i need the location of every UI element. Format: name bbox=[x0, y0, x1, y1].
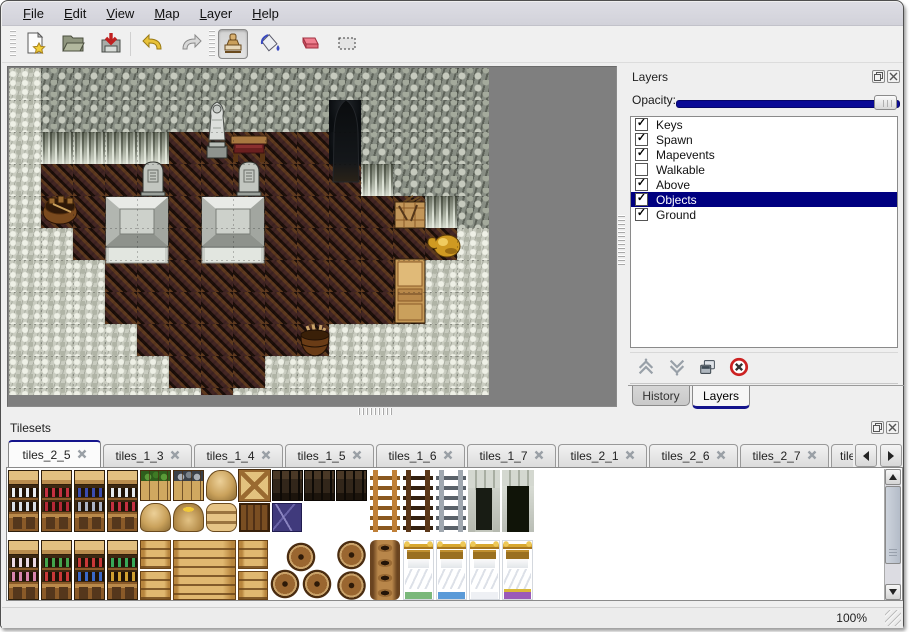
tileset-tile-crate-gold[interactable] bbox=[140, 571, 171, 600]
map-tile-stone-wall bbox=[425, 100, 457, 132]
tileset-tile-shelf-blue[interactable] bbox=[74, 470, 105, 532]
map-tile-wood-floor bbox=[265, 260, 297, 292]
tab-close-icon[interactable] bbox=[534, 449, 544, 463]
layer-visibility-checkbox[interactable]: ✓ bbox=[635, 118, 648, 131]
map-tile-stone-wall bbox=[457, 164, 489, 196]
tileset-tile-chest-dark[interactable] bbox=[304, 470, 335, 501]
tab-label: tiles_1_6 bbox=[388, 449, 436, 463]
map-tile-stone-wall bbox=[425, 132, 457, 164]
undo-icon bbox=[141, 31, 165, 58]
tileset-tile-bed-blue[interactable] bbox=[436, 540, 467, 600]
tileset-tile-chest-dark[interactable] bbox=[336, 470, 367, 501]
tileset-tile-ladder-dark[interactable] bbox=[403, 470, 433, 532]
tileset-tile-crate-gold-wide[interactable] bbox=[173, 540, 236, 600]
menu-bar: FileEditViewMapLayerHelp bbox=[2, 2, 903, 26]
tileset-tab-tiles_1_6[interactable]: tiles_1_6 bbox=[376, 444, 465, 467]
map-tile-stone-ground bbox=[41, 228, 73, 260]
select-tool-icon bbox=[335, 31, 359, 58]
map-tile-stone-wall bbox=[361, 68, 393, 100]
map-object-stone-platform bbox=[105, 196, 169, 264]
map-tile-wood-floor bbox=[105, 292, 137, 324]
map-tile-stone-ground bbox=[425, 324, 457, 356]
scroll-up-button[interactable] bbox=[885, 469, 901, 485]
map-tile-wood-floor bbox=[265, 292, 297, 324]
map-tile-wood-floor bbox=[105, 164, 137, 196]
tileset-tile-bed-green[interactable] bbox=[403, 540, 434, 600]
tileset-tile-arch-door[interactable] bbox=[502, 470, 534, 532]
map-tile-stone-wall bbox=[233, 100, 265, 132]
tileset-tile-purple[interactable] bbox=[272, 503, 302, 532]
layer-label: Keys bbox=[656, 118, 683, 132]
tileset-tile-crate-gold[interactable] bbox=[238, 571, 268, 600]
new-file-icon bbox=[23, 31, 47, 58]
tileset-tile-barrel[interactable] bbox=[336, 571, 367, 600]
map-tile-stone-wall bbox=[169, 68, 201, 100]
map-tile-wood-floor bbox=[201, 388, 233, 395]
map-tile-wood-floor bbox=[297, 164, 329, 196]
layer-row-ground[interactable]: ✓Ground bbox=[631, 207, 897, 222]
map-tile-stone-ground bbox=[457, 292, 489, 324]
scroll-down-button[interactable] bbox=[885, 584, 901, 600]
map-tile-wood-floor bbox=[361, 260, 393, 292]
layer-row-walkable[interactable]: Walkable bbox=[631, 162, 897, 177]
stamp-tool-icon bbox=[221, 31, 245, 58]
map-tile-stone-wall bbox=[393, 164, 425, 196]
opacity-slider-track[interactable] bbox=[676, 100, 900, 108]
tileset-tile-crate-green[interactable] bbox=[140, 470, 171, 501]
map-tile-wood-floor bbox=[329, 228, 361, 260]
tab-scroll-left-button[interactable] bbox=[855, 444, 877, 467]
map-tile-stone-ground bbox=[9, 196, 41, 228]
tab-scroll-right-button[interactable] bbox=[880, 444, 902, 467]
dock-tab-layers[interactable]: Layers bbox=[692, 386, 750, 409]
map-tile-stone-wall bbox=[297, 68, 329, 100]
tab-label: tiles_2_7 bbox=[752, 449, 800, 463]
select-tool-button[interactable] bbox=[332, 29, 362, 59]
map-tile-wood-floor bbox=[169, 356, 201, 388]
redo-icon bbox=[179, 31, 203, 58]
layer-label: Ground bbox=[656, 208, 696, 222]
map-tile-stone-ground bbox=[265, 356, 297, 388]
map-tile-cliff-wall bbox=[105, 132, 137, 164]
map-tile-stone-wall bbox=[393, 100, 425, 132]
move-down-icon bbox=[667, 357, 687, 380]
layer-actions-toolbar bbox=[630, 352, 898, 384]
tileset-tile-sack[interactable] bbox=[206, 470, 237, 501]
new-file-button[interactable] bbox=[20, 29, 50, 59]
tileset-tile-shelf-bottles[interactable] bbox=[107, 540, 138, 600]
float-panel-button[interactable] bbox=[872, 70, 885, 83]
fill-tool-button[interactable] bbox=[256, 29, 286, 59]
map-tile-stone-ground bbox=[41, 260, 73, 292]
eraser-tool-icon bbox=[297, 31, 321, 58]
tileset-tile-sack-stack[interactable] bbox=[206, 503, 237, 532]
map-tile-wood-floor bbox=[137, 324, 169, 356]
map-tile-wood-floor bbox=[265, 196, 297, 228]
map-tile-stone-wall bbox=[137, 68, 169, 100]
tab-label: tiles_1_4 bbox=[206, 449, 254, 463]
opacity-slider-handle[interactable] bbox=[874, 95, 897, 110]
tileset-tile-pots[interactable] bbox=[370, 540, 400, 600]
zoom-level: 100% bbox=[836, 611, 867, 625]
save-icon bbox=[99, 31, 123, 58]
horizontal-splitter-handle[interactable] bbox=[358, 408, 394, 415]
map-tile-stone-ground bbox=[457, 388, 489, 395]
map-tile-wood-floor bbox=[73, 228, 105, 260]
map-tile-stone-wall bbox=[425, 68, 457, 100]
map-canvas-area[interactable] bbox=[7, 66, 617, 407]
map-object-crate bbox=[393, 194, 427, 230]
map-tile-stone-wall bbox=[361, 100, 393, 132]
menu-view[interactable]: View bbox=[97, 4, 143, 23]
map-tile-stone-ground bbox=[329, 388, 361, 395]
tileset-tile-barrel-pile[interactable] bbox=[270, 541, 333, 600]
map-object-cave-door bbox=[327, 98, 365, 184]
map-tile-stone-ground bbox=[393, 356, 425, 388]
map-tile-stone-ground bbox=[425, 292, 457, 324]
map-tile-stone-wall bbox=[425, 164, 457, 196]
toolbar-handle[interactable] bbox=[209, 30, 215, 58]
map-tile-stone-ground bbox=[393, 388, 425, 395]
layer-row-keys[interactable]: ✓Keys bbox=[631, 117, 897, 132]
eraser-tool-button[interactable] bbox=[294, 29, 324, 59]
tileset-tile-shelf-jars[interactable] bbox=[107, 470, 138, 532]
tileset-tab-tiles_1_5[interactable]: tiles_1_5 bbox=[285, 444, 374, 467]
map-tile-wood-floor bbox=[201, 292, 233, 324]
map-tile-stone-wall bbox=[361, 132, 393, 164]
map-tile-wood-floor bbox=[297, 196, 329, 228]
tileset-tile-ladder-wood[interactable] bbox=[370, 470, 400, 532]
menu-edit[interactable]: Edit bbox=[55, 4, 95, 23]
map-tile-wood-floor bbox=[297, 132, 329, 164]
map-tile-stone-ground bbox=[9, 356, 41, 388]
map-tile-wood-floor bbox=[201, 324, 233, 356]
status-bar: 100% bbox=[2, 607, 903, 628]
map-tile-cliff-wall bbox=[73, 132, 105, 164]
map-tile-stone-wall bbox=[265, 100, 297, 132]
map-tile-wood-floor bbox=[137, 260, 169, 292]
map-tile-wood-floor bbox=[393, 228, 425, 260]
map-tile-stone-ground bbox=[233, 388, 265, 395]
tab-close-icon[interactable] bbox=[716, 449, 726, 463]
map-tile-stone-ground bbox=[9, 260, 41, 292]
map-tile-wood-floor bbox=[265, 132, 297, 164]
close-panel-button[interactable] bbox=[886, 421, 899, 434]
layer-row-objects[interactable]: ✓Objects bbox=[631, 192, 897, 207]
tab-close-icon[interactable] bbox=[625, 449, 635, 463]
duplicate-icon bbox=[698, 357, 718, 380]
tab-label: tiles_1_7 bbox=[479, 449, 527, 463]
tileset-scrollbar[interactable] bbox=[884, 469, 901, 600]
map-object-gravestone bbox=[235, 158, 263, 196]
map-tile-stone-ground bbox=[9, 292, 41, 324]
map-tile-stone-ground bbox=[73, 324, 105, 356]
map-tile-stone-wall bbox=[105, 100, 137, 132]
map-tile-stone-ground bbox=[73, 260, 105, 292]
map-tile-stone-ground bbox=[297, 356, 329, 388]
tilesets-panel-header: Tilesets bbox=[4, 420, 905, 438]
tileset-tab-tiles_2_6[interactable]: tiles_2_6 bbox=[649, 444, 738, 467]
tab-close-icon[interactable] bbox=[77, 448, 87, 462]
map-tile-stone-ground bbox=[9, 164, 41, 196]
map-tile-stone-ground bbox=[41, 356, 73, 388]
map-tile-stone-ground bbox=[137, 356, 169, 388]
layer-label: Spawn bbox=[656, 133, 693, 147]
tileset-tile-crate-panel[interactable] bbox=[239, 503, 270, 532]
map-tile-cliff-wall bbox=[41, 132, 73, 164]
map-tile-stone-ground bbox=[9, 132, 41, 164]
layer-list: ✓Keys✓Spawn✓MapeventsWalkable✓Above✓Obje… bbox=[630, 116, 898, 348]
save-button[interactable] bbox=[96, 29, 126, 59]
tab-close-icon[interactable] bbox=[261, 449, 271, 463]
map-tile-stone-ground bbox=[425, 260, 457, 292]
redo-button[interactable] bbox=[176, 29, 206, 59]
map-tile-wood-floor bbox=[169, 228, 201, 260]
tileset-tile-bed-plain[interactable] bbox=[469, 540, 500, 600]
layer-visibility-checkbox[interactable]: ✓ bbox=[635, 133, 648, 146]
map-canvas[interactable] bbox=[9, 68, 489, 395]
map-tile-wood-floor bbox=[169, 196, 201, 228]
map-tile-stone-wall bbox=[41, 68, 73, 100]
map-tile-stone-ground bbox=[105, 324, 137, 356]
tileset-tile-crate-gold[interactable] bbox=[140, 540, 171, 569]
map-tile-wood-floor bbox=[329, 260, 361, 292]
map-tile-wood-floor bbox=[329, 292, 361, 324]
menu-help[interactable]: Help bbox=[243, 4, 288, 23]
layer-row-mapevents[interactable]: ✓Mapevents bbox=[631, 147, 897, 162]
tileset-tile-chest-dark[interactable] bbox=[272, 470, 303, 501]
map-tile-stone-ground bbox=[361, 388, 393, 395]
map-tile-wood-floor bbox=[265, 324, 297, 356]
map-tile-stone-wall bbox=[457, 100, 489, 132]
dock-tab-history[interactable]: History bbox=[632, 386, 690, 406]
dock-tabs: HistoryLayers bbox=[628, 385, 904, 411]
layer-row-above[interactable]: ✓Above bbox=[631, 177, 897, 192]
tileset-tab-bar: tiles_2_5tiles_1_3tiles_1_4tiles_1_5tile… bbox=[8, 440, 853, 467]
map-tile-wood-floor bbox=[201, 356, 233, 388]
map-tile-stone-wall bbox=[201, 68, 233, 100]
tab-close-icon[interactable] bbox=[807, 449, 817, 463]
layers-panel-title: Layers bbox=[632, 70, 668, 84]
map-tile-stone-ground bbox=[73, 388, 105, 395]
map-tile-stone-wall bbox=[457, 132, 489, 164]
tileset-tab-tiles[interactable]: tiles_ bbox=[831, 444, 853, 467]
map-tile-stone-wall bbox=[105, 68, 137, 100]
map-tile-stone-ground bbox=[361, 356, 393, 388]
undo-button[interactable] bbox=[138, 29, 168, 59]
map-object-statue bbox=[202, 100, 232, 162]
map-tile-wood-floor bbox=[329, 196, 361, 228]
layer-visibility-checkbox[interactable] bbox=[635, 163, 648, 176]
tileset-tile-ladder-metal[interactable] bbox=[436, 470, 466, 532]
map-tile-stone-ground bbox=[329, 356, 361, 388]
map-tile-wood-floor bbox=[265, 164, 297, 196]
layer-label: Above bbox=[656, 178, 690, 192]
open-button[interactable] bbox=[58, 29, 88, 59]
map-tile-stone-ground bbox=[73, 356, 105, 388]
map-tile-stone-wall bbox=[393, 68, 425, 100]
toolbar-separator bbox=[130, 32, 131, 56]
tab-close-icon[interactable] bbox=[443, 449, 453, 463]
float-panel-button[interactable] bbox=[871, 421, 884, 434]
move-down-layer-button[interactable] bbox=[665, 356, 689, 380]
map-object-stone-platform bbox=[201, 196, 265, 264]
map-tile-wood-floor bbox=[137, 292, 169, 324]
map-tile-wood-floor bbox=[297, 228, 329, 260]
stamp-tool-button[interactable] bbox=[218, 29, 248, 59]
map-tile-stone-ground bbox=[73, 292, 105, 324]
map-tile-stone-ground bbox=[297, 388, 329, 395]
map-tile-stone-wall bbox=[137, 100, 169, 132]
menu-map[interactable]: Map bbox=[145, 4, 188, 23]
move-up-layer-button[interactable] bbox=[634, 356, 658, 380]
tileset-tile-bed-purple[interactable] bbox=[502, 540, 533, 600]
map-object-barrel bbox=[297, 320, 333, 358]
map-tile-stone-ground bbox=[41, 388, 73, 395]
map-tile-stone-wall bbox=[233, 68, 265, 100]
map-object-cabinet bbox=[394, 258, 426, 324]
layer-label: Mapevents bbox=[656, 148, 715, 162]
map-object-pot bbox=[41, 186, 79, 226]
map-tile-wood-floor bbox=[169, 132, 201, 164]
fill-tool-icon bbox=[259, 31, 283, 58]
map-tile-stone-ground bbox=[457, 356, 489, 388]
tileset-canvas[interactable] bbox=[6, 467, 903, 601]
move-up-icon bbox=[636, 357, 656, 380]
map-tile-stone-ground bbox=[9, 324, 41, 356]
tileset-tile-shelf-potions[interactable] bbox=[41, 540, 72, 600]
toolbar bbox=[2, 26, 903, 63]
map-tile-stone-ground bbox=[41, 324, 73, 356]
duplicate-layer-button[interactable] bbox=[696, 356, 720, 380]
delete-icon bbox=[729, 357, 749, 380]
map-tile-stone-wall bbox=[73, 100, 105, 132]
map-tile-stone-wall bbox=[265, 68, 297, 100]
tileset-tile-sack[interactable] bbox=[140, 503, 171, 532]
map-tile-stone-ground bbox=[105, 356, 137, 388]
tab-label: tiles_2_5 bbox=[22, 448, 70, 462]
map-tile-stone-ground bbox=[361, 324, 393, 356]
menu-file[interactable]: File bbox=[14, 4, 53, 23]
map-tile-cliff-wall bbox=[361, 164, 393, 196]
map-tile-stone-ground bbox=[169, 388, 201, 395]
close-panel-button[interactable] bbox=[887, 70, 900, 83]
tileset-tile-shelf-dishes[interactable] bbox=[8, 470, 39, 532]
tileset-tile-shelf-books[interactable] bbox=[74, 540, 105, 600]
tab-label: tiles_2_1 bbox=[570, 449, 618, 463]
layer-visibility-checkbox[interactable]: ✓ bbox=[635, 193, 648, 206]
map-tile-stone-ground bbox=[137, 388, 169, 395]
map-tile-stone-ground bbox=[9, 68, 41, 100]
map-tile-wood-floor bbox=[361, 228, 393, 260]
map-tile-wood-floor bbox=[265, 228, 297, 260]
tileset-tile-barrel[interactable] bbox=[336, 540, 367, 570]
delete-layer-button[interactable] bbox=[727, 356, 751, 380]
tileset-tile-shelf-red[interactable] bbox=[41, 470, 72, 532]
tilesets-panel-title: Tilesets bbox=[10, 421, 51, 435]
tab-close-icon[interactable] bbox=[170, 449, 180, 463]
tileset-tile-crate-gold[interactable] bbox=[238, 540, 268, 569]
map-tile-wood-floor bbox=[169, 164, 201, 196]
map-tile-wood-floor bbox=[233, 356, 265, 388]
map-tile-stone-ground bbox=[425, 388, 457, 395]
map-tile-wood-floor bbox=[297, 260, 329, 292]
tileset-tile-arch-open[interactable] bbox=[468, 470, 500, 532]
layer-label: Objects bbox=[656, 193, 697, 207]
tab-label: tiles_1_5 bbox=[297, 449, 345, 463]
map-tile-wood-floor bbox=[233, 324, 265, 356]
open-icon bbox=[61, 31, 85, 58]
map-tile-stone-wall bbox=[457, 68, 489, 100]
map-tile-wood-floor bbox=[361, 292, 393, 324]
resize-grip[interactable] bbox=[885, 610, 901, 626]
tileset-tab-tiles_1_3[interactable]: tiles_1_3 bbox=[103, 444, 192, 467]
tileset-tile-crate-x[interactable] bbox=[239, 470, 270, 501]
map-object-gravestone bbox=[139, 158, 167, 196]
tileset-tab-tiles_2_5[interactable]: tiles_2_5 bbox=[8, 440, 101, 467]
layer-label: Walkable bbox=[656, 163, 705, 177]
map-tile-stone-ground bbox=[393, 324, 425, 356]
map-tile-stone-ground bbox=[329, 324, 361, 356]
layers-panel-header: Layers bbox=[628, 68, 904, 88]
application-window: FileEditViewMapLayerHelp Layers Opacity:… bbox=[0, 0, 909, 632]
map-tile-stone-wall bbox=[73, 68, 105, 100]
tileset-tile-crate-gray[interactable] bbox=[173, 470, 204, 501]
map-tile-stone-ground bbox=[105, 388, 137, 395]
map-tile-wood-floor bbox=[201, 164, 233, 196]
map-tile-stone-ground bbox=[9, 228, 41, 260]
layer-visibility-checkbox[interactable]: ✓ bbox=[635, 208, 648, 221]
tileset-tile-sack-open[interactable] bbox=[173, 503, 204, 532]
map-tile-stone-ground bbox=[425, 356, 457, 388]
vertical-splitter-handle[interactable] bbox=[618, 215, 625, 267]
tileset-tab-tiles_2_7[interactable]: tiles_2_7 bbox=[740, 444, 829, 467]
map-tile-wood-floor bbox=[233, 260, 265, 292]
map-tile-stone-wall bbox=[41, 100, 73, 132]
map-tile-wood-floor bbox=[361, 196, 393, 228]
map-tile-stone-wall bbox=[169, 100, 201, 132]
tileset-tab-tiles_2_1[interactable]: tiles_2_1 bbox=[558, 444, 647, 467]
tileset-tile-shelf-cakes[interactable] bbox=[8, 540, 39, 600]
menu-layer[interactable]: Layer bbox=[191, 4, 242, 23]
map-tile-wood-floor bbox=[105, 260, 137, 292]
map-tile-stone-ground bbox=[41, 292, 73, 324]
map-tile-stone-ground bbox=[265, 388, 297, 395]
tab-label: tiles_2_6 bbox=[661, 449, 709, 463]
layer-row-spawn[interactable]: ✓Spawn bbox=[631, 132, 897, 147]
toolbar-handle[interactable] bbox=[10, 30, 16, 58]
tab-label: tiles_1_3 bbox=[115, 449, 163, 463]
map-tile-wood-floor bbox=[201, 260, 233, 292]
map-tile-wood-floor bbox=[233, 292, 265, 324]
map-tile-stone-ground bbox=[9, 100, 41, 132]
tileset-tab-tiles_1_4[interactable]: tiles_1_4 bbox=[194, 444, 283, 467]
map-object-gold-vase bbox=[425, 224, 463, 262]
tab-label: tiles_ bbox=[840, 449, 853, 463]
scrollbar-thumb[interactable] bbox=[885, 486, 901, 564]
map-tile-stone-ground bbox=[457, 260, 489, 292]
tileset-tab-tiles_1_7[interactable]: tiles_1_7 bbox=[467, 444, 556, 467]
map-tile-wood-floor bbox=[169, 292, 201, 324]
map-tile-stone-ground bbox=[457, 324, 489, 356]
layer-visibility-checkbox[interactable]: ✓ bbox=[635, 148, 648, 161]
layer-visibility-checkbox[interactable]: ✓ bbox=[635, 178, 648, 191]
tab-close-icon[interactable] bbox=[352, 449, 362, 463]
map-tile-stone-wall bbox=[297, 100, 329, 132]
opacity-label: Opacity: bbox=[632, 93, 676, 107]
map-tile-stone-wall bbox=[329, 68, 361, 100]
map-tile-wood-floor bbox=[169, 324, 201, 356]
